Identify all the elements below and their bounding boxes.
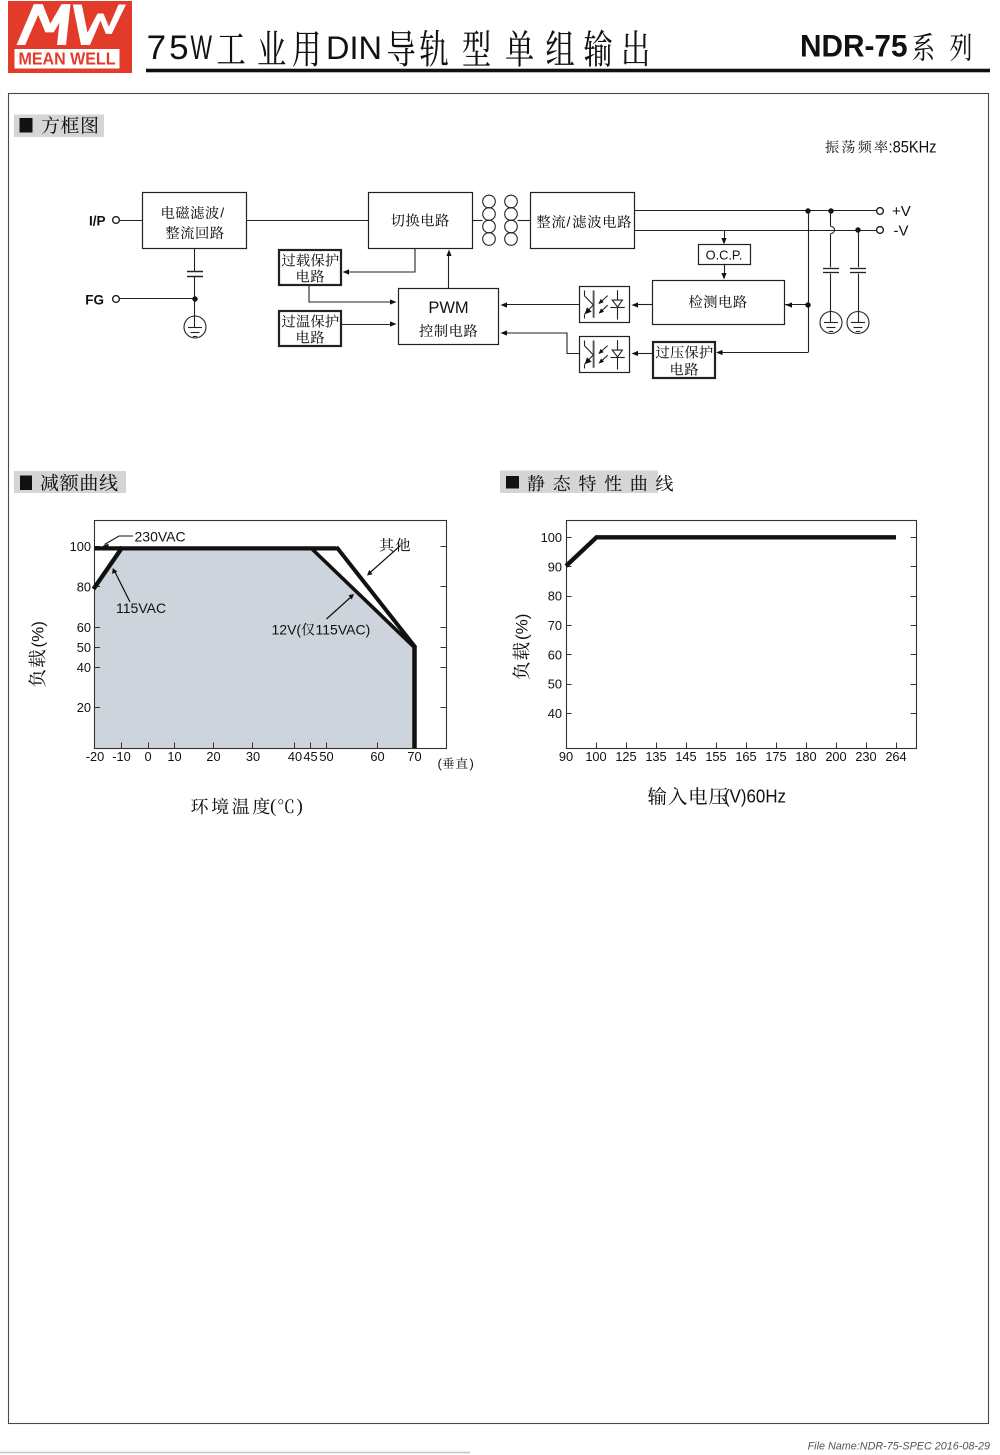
svg-text:70: 70 xyxy=(407,749,421,764)
svg-text:(V)60Hz: (V)60Hz xyxy=(724,786,786,807)
svg-text:DIN: DIN xyxy=(326,30,382,66)
svg-text:5: 5 xyxy=(169,29,189,67)
svg-text:-20: -20 xyxy=(86,749,105,764)
svg-text:File Name:NDR-75-SPEC 2016-08: File Name:NDR-75-SPEC 2016-08-29 xyxy=(808,1441,990,1453)
svg-text:I/P: I/P xyxy=(89,214,106,229)
svg-text:100: 100 xyxy=(70,539,91,554)
svg-text:MEAN WELL: MEAN WELL xyxy=(19,49,116,69)
svg-text:20: 20 xyxy=(77,700,91,715)
svg-text:90: 90 xyxy=(559,749,573,764)
svg-text:0: 0 xyxy=(144,749,151,764)
svg-text:80: 80 xyxy=(548,589,562,604)
svg-text:7: 7 xyxy=(147,29,167,67)
svg-text:/: / xyxy=(220,205,224,221)
svg-text:+V: +V xyxy=(892,203,911,220)
svg-text:100: 100 xyxy=(585,749,606,764)
svg-text:40: 40 xyxy=(77,660,91,675)
svg-text:60: 60 xyxy=(370,749,384,764)
svg-text:230VAC: 230VAC xyxy=(135,529,186,545)
svg-text:155: 155 xyxy=(705,749,726,764)
svg-text:40: 40 xyxy=(548,706,562,721)
svg-text:(%): (%) xyxy=(29,621,48,647)
svg-text:): ) xyxy=(470,756,474,771)
svg-text:145: 145 xyxy=(675,749,696,764)
svg-text:PWM: PWM xyxy=(428,299,468,317)
svg-text:50: 50 xyxy=(548,677,562,692)
svg-text:W: W xyxy=(191,29,213,67)
svg-text::85KHz: :85KHz xyxy=(889,139,937,157)
svg-text:20: 20 xyxy=(206,749,220,764)
svg-text:70: 70 xyxy=(548,618,562,633)
svg-text:115VAC): 115VAC) xyxy=(316,622,371,638)
svg-text:50: 50 xyxy=(319,749,333,764)
svg-text:180: 180 xyxy=(795,749,816,764)
svg-text:60: 60 xyxy=(77,620,91,635)
svg-text:/: / xyxy=(567,214,571,230)
svg-text:125: 125 xyxy=(615,749,636,764)
svg-text:-10: -10 xyxy=(112,749,131,764)
svg-text:264: 264 xyxy=(885,749,906,764)
svg-text:40: 40 xyxy=(288,749,302,764)
svg-text:O.C.P.: O.C.P. xyxy=(706,248,743,263)
svg-text:12V(: 12V( xyxy=(272,622,302,638)
svg-text:30: 30 xyxy=(246,749,260,764)
svg-text:135: 135 xyxy=(645,749,666,764)
svg-text:-V: -V xyxy=(894,223,909,240)
svg-text:115VAC: 115VAC xyxy=(116,600,166,616)
svg-text:FG: FG xyxy=(85,293,104,308)
svg-text:100: 100 xyxy=(541,530,562,545)
svg-text:): ) xyxy=(297,796,303,817)
svg-text:10: 10 xyxy=(167,749,181,764)
svg-text:165: 165 xyxy=(735,749,756,764)
svg-text:230: 230 xyxy=(855,749,876,764)
svg-text:60: 60 xyxy=(548,647,562,662)
svg-text:NDR-75: NDR-75 xyxy=(800,28,908,64)
svg-text:(: ( xyxy=(270,796,276,817)
svg-text:90: 90 xyxy=(548,559,562,574)
svg-text:175: 175 xyxy=(765,749,786,764)
svg-text:80: 80 xyxy=(77,580,91,595)
svg-text:50: 50 xyxy=(77,640,91,655)
svg-text:45: 45 xyxy=(303,749,317,764)
svg-text:(%): (%) xyxy=(513,614,532,640)
svg-text:(: ( xyxy=(438,756,443,771)
svg-text:200: 200 xyxy=(825,749,846,764)
